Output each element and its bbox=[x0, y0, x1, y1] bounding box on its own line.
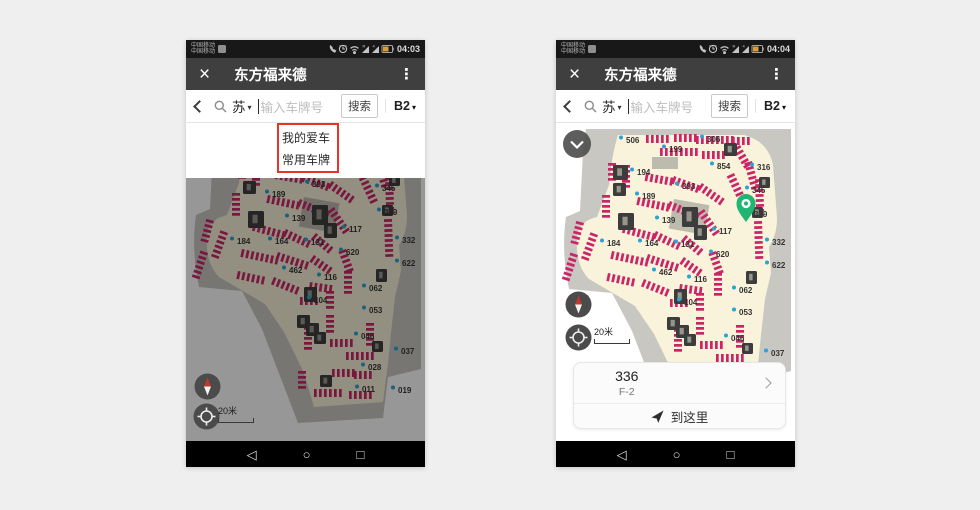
facility-icon bbox=[617, 168, 622, 176]
android-back-button[interactable]: ◁ bbox=[617, 448, 627, 461]
search-dropdown-area: 我的爱车 常用车牌 bbox=[186, 123, 425, 178]
clock: 04:03 bbox=[397, 44, 420, 54]
facility-icon bbox=[622, 217, 627, 226]
android-back-button[interactable]: ◁ bbox=[247, 448, 257, 461]
search-icon bbox=[214, 100, 227, 113]
compass-button[interactable] bbox=[194, 373, 221, 400]
plate-search-bar: 苏 ▾ 输入车牌号 搜索 B2 ▾ bbox=[556, 90, 795, 123]
facility-icon bbox=[745, 345, 749, 351]
menu-item-frequent-plates[interactable]: 常用车牌 bbox=[280, 149, 332, 171]
plate-input[interactable]: 输入车牌号 bbox=[631, 97, 694, 116]
province-selector[interactable]: 苏 bbox=[232, 96, 246, 116]
carrier-label: 中国移动 中国移动 bbox=[191, 43, 215, 56]
screenshot-canvas: 中国移动 中国移动 R 4 bbox=[0, 0, 980, 510]
facility-icon bbox=[680, 328, 684, 335]
battery-icon bbox=[382, 46, 394, 53]
spot-count-label[interactable]: 306 bbox=[707, 135, 721, 144]
status-icons: R 4 bbox=[328, 43, 394, 55]
close-button[interactable]: × bbox=[199, 65, 210, 84]
zone-dot bbox=[712, 227, 716, 231]
spot-count-label[interactable]: 194 bbox=[637, 168, 651, 177]
map-dim-overlay bbox=[186, 178, 425, 441]
zone-dot bbox=[638, 239, 642, 243]
svg-text:R: R bbox=[362, 44, 365, 49]
phone-screen-right: 中国移动 中国移动 R 4 bbox=[556, 40, 795, 467]
spot-count-label[interactable]: 184 bbox=[607, 239, 621, 248]
spot-count-label[interactable]: 199 bbox=[669, 145, 683, 154]
zone-dot bbox=[655, 216, 659, 220]
spot-count-label[interactable]: 854 bbox=[717, 162, 731, 171]
android-nav-bar: ◁ ○ □ bbox=[186, 441, 425, 467]
back-button[interactable] bbox=[193, 100, 206, 113]
spot-count-label[interactable]: 189 bbox=[642, 192, 656, 201]
search-button[interactable]: 搜索 bbox=[711, 94, 748, 118]
scale-bar bbox=[218, 418, 254, 423]
menu-item-my-car[interactable]: 我的爱车 bbox=[280, 127, 332, 149]
spot-count-label[interactable]: 393 bbox=[682, 182, 696, 191]
spot-count-label[interactable]: 506 bbox=[626, 136, 640, 145]
status-bar: 中国移动 中国移动 R 4 bbox=[186, 40, 425, 58]
page-title: 东方福来德 bbox=[234, 64, 307, 85]
spot-count-label[interactable]: 104 bbox=[684, 298, 698, 307]
zone-dot bbox=[765, 261, 769, 265]
svg-text:R: R bbox=[732, 44, 735, 49]
sim-icon bbox=[218, 45, 226, 53]
page-title: 东方福来德 bbox=[604, 64, 677, 85]
zone-dot bbox=[732, 308, 736, 312]
floor-selector[interactable]: B2 ▾ bbox=[385, 99, 416, 113]
zone-dot bbox=[750, 163, 754, 167]
facility-icon bbox=[686, 211, 691, 221]
zone-dot bbox=[724, 334, 728, 338]
facility-icon bbox=[749, 274, 753, 281]
webview-title-bar: × 东方福来德 ⋮ bbox=[556, 58, 795, 90]
spot-count-label[interactable]: 131 bbox=[681, 240, 695, 249]
signal-icon: R 4 bbox=[362, 44, 379, 54]
spot-result-row[interactable]: 336 F-2 bbox=[574, 363, 785, 404]
webview-title-bar: × 东方福来德 ⋮ bbox=[186, 58, 425, 90]
call-icon bbox=[330, 45, 337, 53]
plate-search-bar: 苏 ▾ 输入车牌号 搜索 B2 ▾ bbox=[186, 90, 425, 123]
spot-count-label[interactable]: 139 bbox=[662, 216, 676, 225]
zone-dot bbox=[674, 240, 678, 244]
search-icon bbox=[584, 100, 597, 113]
svg-text:4: 4 bbox=[742, 44, 745, 49]
map-scale: 20米 bbox=[218, 404, 254, 423]
spot-count-label[interactable]: 037 bbox=[771, 349, 785, 358]
spot-count-label[interactable]: 316 bbox=[757, 163, 771, 172]
zone-dot bbox=[652, 268, 656, 272]
signal-icon: R 4 bbox=[732, 44, 749, 54]
facility-icon bbox=[687, 337, 691, 343]
wifi-icon bbox=[721, 47, 729, 54]
zone-dot bbox=[662, 145, 666, 149]
android-nav-bar: ◁ ○ □ bbox=[556, 441, 795, 467]
zone-dot bbox=[619, 136, 623, 140]
spot-count-label[interactable]: 116 bbox=[694, 275, 707, 284]
spot-count-label[interactable]: 164 bbox=[645, 239, 659, 248]
floor-selector[interactable]: B2 ▾ bbox=[755, 99, 786, 113]
svg-text:4: 4 bbox=[372, 44, 375, 49]
phone-screen-left: 中国移动 中国移动 R 4 bbox=[186, 40, 425, 467]
navigate-here-button[interactable]: 到这里 bbox=[574, 404, 785, 429]
plate-dropdown-menu: 我的爱车 常用车牌 bbox=[280, 127, 332, 171]
spot-count-label[interactable]: 345 bbox=[752, 186, 766, 195]
search-button[interactable]: 搜索 bbox=[341, 94, 378, 118]
zone-dot bbox=[687, 275, 691, 279]
spot-count-label[interactable]: 332 bbox=[772, 238, 786, 247]
back-button[interactable] bbox=[563, 100, 576, 113]
navigation-arrow-icon bbox=[651, 410, 664, 423]
spot-count-label[interactable]: 053 bbox=[739, 308, 753, 317]
battery-icon bbox=[752, 46, 764, 53]
facility-icon bbox=[728, 146, 732, 153]
more-menu-button[interactable]: ⋮ bbox=[769, 65, 784, 83]
spot-count-label[interactable]: 046 bbox=[731, 334, 745, 343]
compass-button[interactable] bbox=[565, 291, 592, 318]
spot-count-label[interactable]: 062 bbox=[739, 286, 753, 295]
wifi-icon bbox=[351, 47, 359, 54]
text-cursor bbox=[258, 99, 259, 114]
spot-floor: F-2 bbox=[574, 386, 680, 398]
zone-dot bbox=[700, 135, 704, 139]
zone-dot bbox=[764, 349, 768, 353]
zone-dot bbox=[677, 298, 681, 302]
carrier-label: 中国移动 中国移动 bbox=[561, 43, 585, 56]
zone-dot bbox=[600, 239, 604, 243]
android-home-button[interactable]: ○ bbox=[303, 448, 311, 461]
spot-count-label[interactable]: 117 bbox=[719, 227, 732, 236]
spot-count: 336 bbox=[574, 368, 680, 384]
sim-icon bbox=[588, 45, 596, 53]
scale-bar bbox=[594, 339, 630, 344]
close-button[interactable]: × bbox=[569, 65, 580, 84]
map-structure bbox=[652, 157, 678, 169]
chevron-down-icon: ▾ bbox=[412, 103, 416, 112]
facility-icon bbox=[617, 186, 621, 193]
status-bar: 中国移动 中国移动 R 4 bbox=[556, 40, 795, 58]
chevron-down-icon[interactable]: ▾ bbox=[248, 103, 252, 112]
zone-dot bbox=[635, 192, 639, 196]
zone-dot bbox=[710, 162, 714, 166]
province-selector[interactable]: 苏 bbox=[602, 96, 616, 116]
facility-icon bbox=[671, 320, 675, 327]
locate-button[interactable] bbox=[193, 403, 220, 430]
collapse-panel-button[interactable] bbox=[562, 129, 592, 159]
alarm-icon bbox=[339, 45, 346, 52]
spot-count-label[interactable]: 620 bbox=[716, 250, 730, 259]
spot-count-label[interactable]: 622 bbox=[772, 261, 786, 270]
android-recents-button[interactable]: □ bbox=[357, 448, 365, 461]
locate-button[interactable] bbox=[565, 324, 592, 351]
zone-dot bbox=[765, 238, 769, 242]
facility-icon bbox=[762, 179, 766, 185]
more-menu-button[interactable]: ⋮ bbox=[399, 65, 414, 83]
chevron-down-icon[interactable]: ▾ bbox=[618, 103, 622, 112]
alarm-icon bbox=[709, 45, 716, 52]
zone-dot bbox=[630, 168, 634, 172]
zone-dot bbox=[675, 182, 679, 186]
text-cursor bbox=[628, 99, 629, 114]
status-icons: R 4 bbox=[698, 43, 764, 55]
map-scale: 20米 bbox=[594, 325, 630, 344]
android-recents-button[interactable]: □ bbox=[727, 448, 735, 461]
clock: 04:04 bbox=[767, 44, 790, 54]
zone-dot bbox=[732, 286, 736, 290]
call-icon bbox=[700, 45, 707, 53]
spot-count-label[interactable]: 462 bbox=[659, 268, 673, 277]
zone-dot bbox=[709, 250, 713, 254]
android-home-button[interactable]: ○ bbox=[673, 448, 681, 461]
facility-icon bbox=[698, 228, 702, 236]
chevron-down-icon: ▾ bbox=[782, 103, 786, 112]
parking-map[interactable]: 5063061991948543163933451893391391171841… bbox=[186, 178, 425, 441]
zone-dot bbox=[745, 186, 749, 190]
spot-count-label[interactable]: 339 bbox=[754, 210, 768, 219]
plate-input[interactable]: 输入车牌号 bbox=[261, 97, 324, 116]
spot-result-card: 336 F-2 到这里 bbox=[573, 362, 786, 429]
chevron-right-icon bbox=[760, 377, 771, 388]
